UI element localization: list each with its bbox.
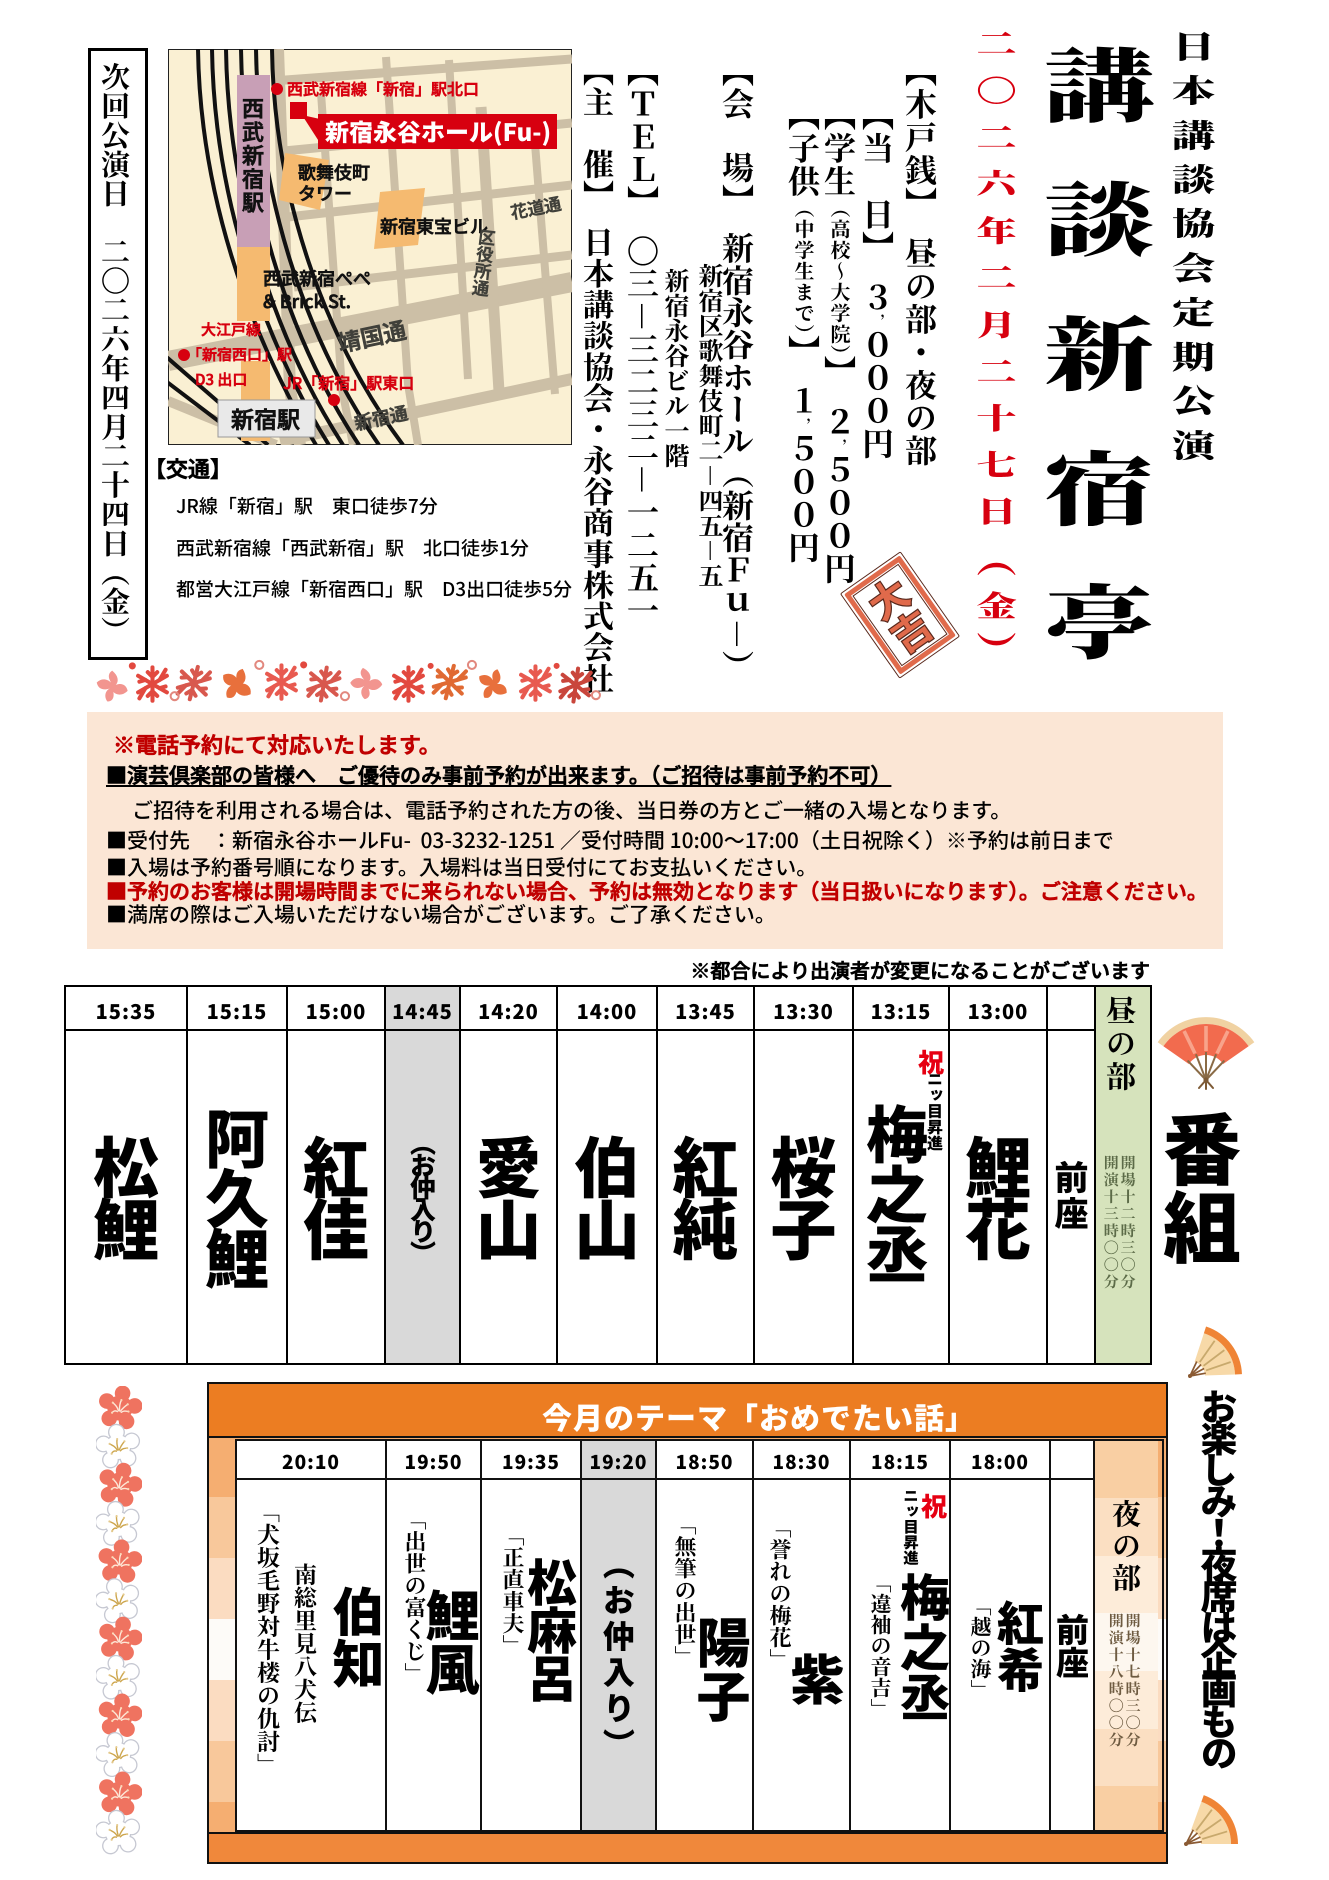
svg-text:新宿永谷ホール(Fu-): 新宿永谷ホール(Fu-) <box>325 113 551 148</box>
svg-text:大江戸線: 大江戸線 <box>201 319 262 340</box>
svg-text:「新宿西口」駅: 「新宿西口」駅 <box>187 344 293 365</box>
svg-text:新宿駅: 新宿駅 <box>230 401 301 435</box>
svg-text:JR「新宿」駅東口: JR「新宿」駅東口 <box>283 370 414 394</box>
svg-text:西武新宿駅: 西武新宿駅 <box>237 97 269 215</box>
svg-text:タワー: タワー <box>298 180 352 206</box>
svg-text:新宿東宝ビル: 新宿東宝ビル <box>379 213 488 239</box>
svg-text:D3 出口: D3 出口 <box>195 369 247 390</box>
svg-text:西武新宿線「新宿」駅北口: 西武新宿線「新宿」駅北口 <box>287 76 479 100</box>
svg-text:& Brick St.: & Brick St. <box>263 288 351 314</box>
